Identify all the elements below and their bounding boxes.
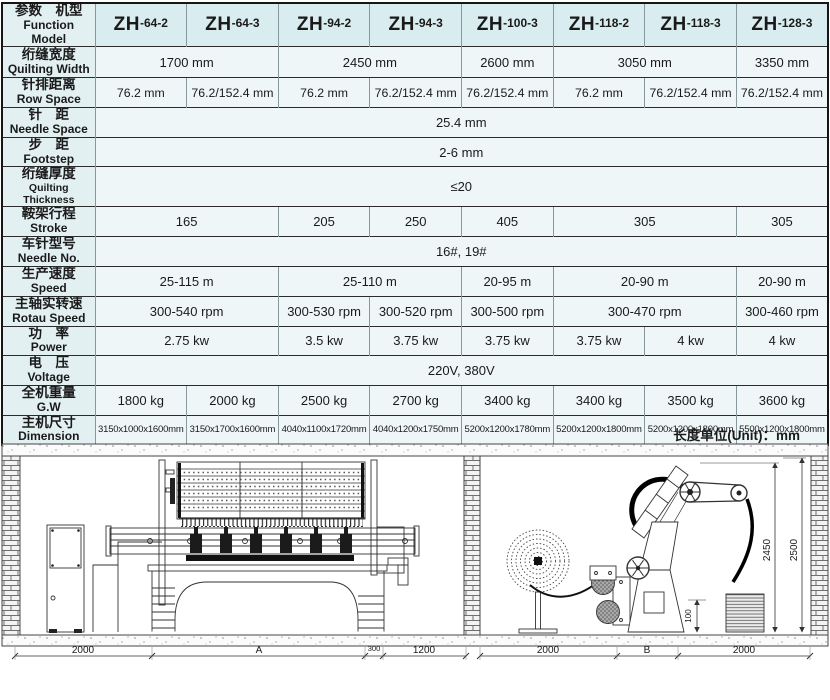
spec-cell: 76.2 mm [553,78,645,108]
row-label: 针排距离Row Space [2,78,95,108]
model-header: ZH-100-3 [462,3,554,47]
function-model-header: 参数 机型 Function Model [2,3,95,47]
dim-label-2450: 2450 [762,538,773,561]
spec-cell: 2600 mm [462,47,554,78]
row-label: 车针型号Needle No. [2,236,95,266]
model-header: ZH-94-3 [370,3,462,47]
spec-cell: 300-520 rpm [370,296,462,326]
spec-cell: 20-95 m [462,266,554,296]
row-label: 鞍架行程Stroke [2,207,95,237]
spec-cell: 2500 kg [278,385,370,415]
rubber-roller [597,601,620,624]
row-needle-space: 针 距Needle Space 25.4 mm [2,108,828,138]
spec-cell: ≤20 [95,167,828,207]
spec-cell: 300-460 rpm [736,296,828,326]
brick-wall-middle [464,456,480,635]
dim-label: 1200 [413,645,436,656]
row-quilting-width: 绗缝宽度Quilting Width 1700 mm 2450 mm 2600 … [2,47,828,78]
dim-label: 2000 [72,645,95,656]
row-speed: 生产速度Speed 25-115 m 25-110 m 20-95 m 20-9… [2,266,828,296]
spec-cell: 300-500 rpm [462,296,554,326]
spec-cell: 25.4 mm [95,108,828,138]
spec-cell: 76.2/152.4 mm [736,78,828,108]
spec-cell: 2000 kg [187,385,279,415]
row-quilting-thickness: 绗缝厚度Quilting Thickness ≤20 [2,167,828,207]
row-voltage: 电 压Voltage 220V, 380V [2,356,828,386]
row-label: 步 距Footstep [2,137,95,167]
model-header: ZH-118-2 [553,3,645,47]
spec-cell: 3050 mm [553,47,736,78]
spec-cell: 76.2 mm [95,78,187,108]
dim-label: 300 [368,644,381,653]
spec-cell: 250 [370,207,462,237]
spec-cell: 3400 kg [553,385,645,415]
row-label: 电 压Voltage [2,356,95,386]
spec-cell: 2-6 mm [95,137,828,167]
model-header: ZH-128-3 [736,3,828,47]
row-label: 绗缝厚度Quilting Thickness [2,167,95,207]
spec-cell: 2450 mm [278,47,461,78]
model-header: ZH-64-2 [95,3,187,47]
row-gw: 全机重量G.W 1800 kg 2000 kg 2500 kg 2700 kg … [2,385,828,415]
spec-cell: 220V, 380V [95,356,828,386]
spec-cell: 405 [462,207,554,237]
dim-label: 2000 [733,645,756,656]
spec-cell: 300-530 rpm [278,296,370,326]
quilting-machine [93,460,419,632]
spec-cell: 2700 kg [370,385,462,415]
spec-cell: 3500 kg [645,385,737,415]
model-header: ZH-94-2 [278,3,370,47]
control-cabinet [47,525,84,633]
model-header: ZH-64-3 [187,3,279,47]
row-power: 功 率Power 2.75 kw 3.5 kw 3.75 kw 3.75 kw … [2,326,828,356]
dim-label: A [256,645,263,656]
spec-cell: 305 [553,207,736,237]
row-label: 功 率Power [2,326,95,356]
spec-cell: 3400 kg [462,385,554,415]
spec-cell: 300-540 rpm [95,296,278,326]
dim-label-2500: 2500 [789,538,800,561]
model-header: ZH-118-3 [645,3,737,47]
spec-cell: 4 kw [736,326,828,356]
spec-cell: 16#, 19# [95,236,828,266]
spec-cell: 205 [278,207,370,237]
spec-cell: 1800 kg [95,385,187,415]
row-rotau-speed: 主轴实转速Rotau Speed 300-540 rpm 300-530 rpm… [2,296,828,326]
spec-cell: 76.2/152.4 mm [462,78,554,108]
spec-cell: 76.2/152.4 mm [187,78,279,108]
spec-cell: 165 [95,207,278,237]
row-footstep: 步 距Footstep 2-6 mm [2,137,828,167]
spec-cell: 2.75 kw [95,326,278,356]
spec-table: 参数 机型 Function Model ZH-64-2 ZH-64-3 ZH-… [1,2,829,446]
dim-label-100: 100 [684,609,693,623]
spec-cell: 25-110 m [278,266,461,296]
dim-label: 2000 [537,645,560,656]
spec-cell: 20-90 m [736,266,828,296]
dim-label: B [644,645,651,656]
spec-cell: 3.75 kw [553,326,645,356]
spec-cell: 3350 mm [736,47,828,78]
spec-cell: 20-90 m [553,266,736,296]
row-needle-no: 车针型号Needle No. 16#, 19# [2,236,828,266]
spec-cell: 25-115 m [95,266,278,296]
brick-wall-right [811,456,828,635]
row-label: 针 距Needle Space [2,108,95,138]
spec-sheet: 参数 机型 Function Model ZH-64-2 ZH-64-3 ZH-… [0,0,830,700]
row-label: 全机重量G.W [2,385,95,415]
spec-cell: 1700 mm [95,47,278,78]
row-label: 主轴实转速Rotau Speed [2,296,95,326]
fabric-roll [507,530,598,633]
spec-cell: 305 [736,207,828,237]
row-stroke: 鞍架行程Stroke 165 205 250 405 305 305 [2,207,828,237]
row-label: 生产速度Speed [2,266,95,296]
spec-cell: 3600 kg [736,385,828,415]
brick-wall-left [2,456,20,635]
ceiling-beam [2,444,828,456]
spec-cell: 3.75 kw [462,326,554,356]
row-row-space: 针排距离Row Space 76.2 mm 76.2/152.4 mm 76.2… [2,78,828,108]
row-label: 绗缝宽度Quilting Width [2,47,95,78]
spec-cell: 300-470 rpm [553,296,736,326]
spec-cell: 4 kw [645,326,737,356]
header-row: 参数 机型 Function Model ZH-64-2 ZH-64-3 ZH-… [2,3,828,47]
spec-cell: 76.2/152.4 mm [370,78,462,108]
spec-cell: 3.5 kw [278,326,370,356]
spec-cell: 3.75 kw [370,326,462,356]
fabric-stack [726,594,764,632]
machine-layout-diagram: 2000 A 300 1200 2000 B 2000 2450 2500 10… [0,430,830,680]
spec-cell: 76.2 mm [278,78,370,108]
spec-cell: 76.2/152.4 mm [645,78,737,108]
